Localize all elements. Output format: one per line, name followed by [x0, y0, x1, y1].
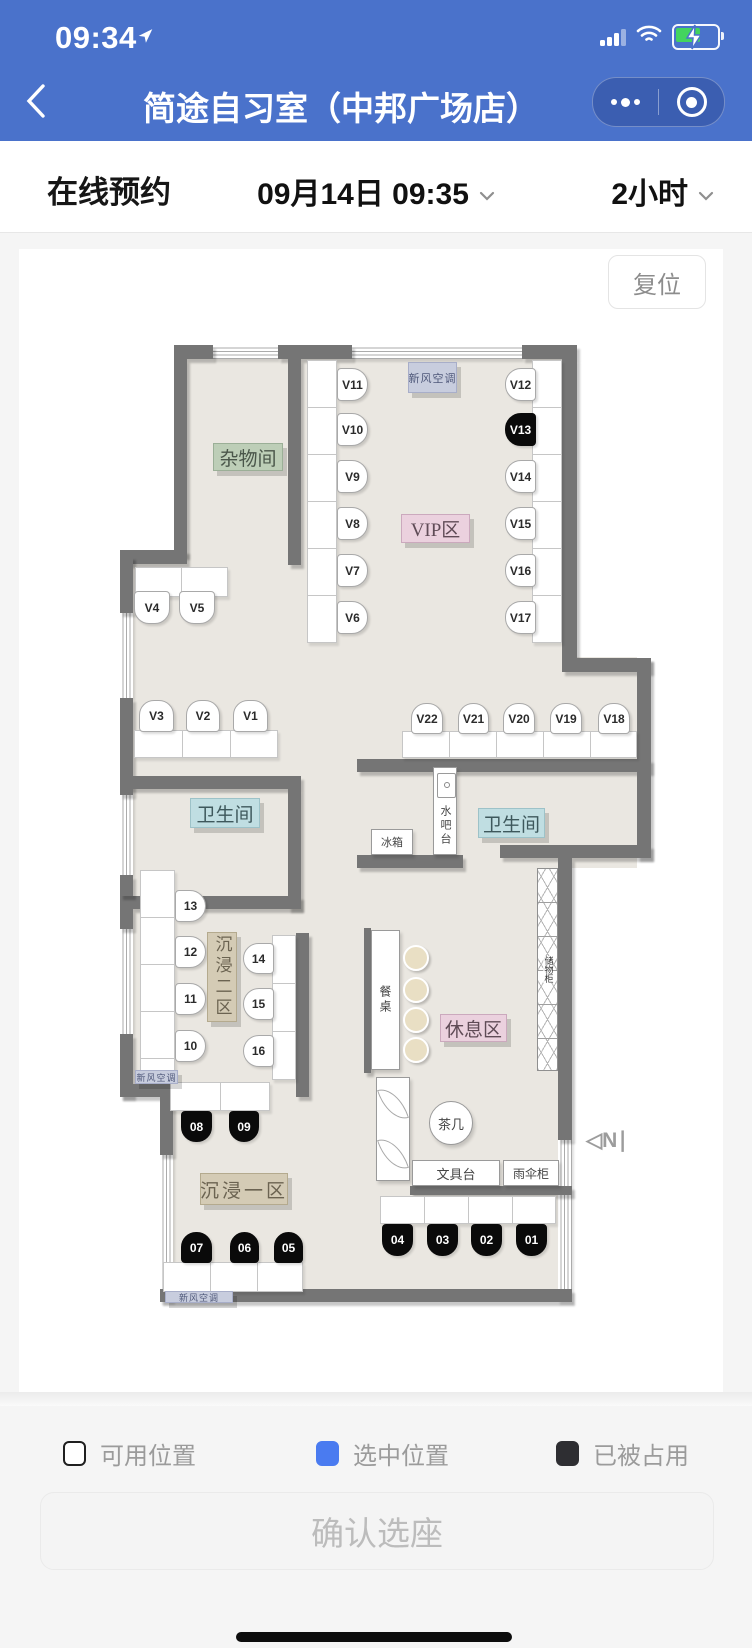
seat-14[interactable]: 14 [243, 943, 274, 974]
seat-V7[interactable]: V7 [337, 554, 368, 587]
wall [558, 858, 572, 1140]
room-label: 沉浸二区 [207, 932, 237, 1022]
legend-swatch [316, 1441, 339, 1466]
seat-10[interactable]: 10 [175, 1030, 206, 1062]
canvas-bottom-fade [0, 1392, 752, 1406]
chevron-down-icon [698, 175, 714, 209]
reset-view-button[interactable]: 复位 [608, 255, 706, 309]
confirm-seat-button[interactable]: 确认选座 [40, 1492, 714, 1570]
signal-icon [600, 29, 626, 46]
wall [296, 933, 309, 1097]
seat-16[interactable]: 16 [243, 1035, 274, 1067]
seat-09[interactable]: 09 [229, 1111, 259, 1142]
target-circle-icon [677, 87, 707, 117]
seat-V6[interactable]: V6 [337, 601, 368, 634]
seat-11[interactable]: 11 [175, 983, 206, 1015]
furniture-茶几: 茶几 [429, 1101, 473, 1145]
close-minimize-button[interactable] [659, 78, 724, 126]
home-indicator [236, 1632, 512, 1642]
seat-01[interactable]: 01 [516, 1224, 547, 1256]
seat-V17[interactable]: V17 [505, 601, 536, 634]
booking-bar: 在线预约 09月14日 09:35 2小时 [0, 141, 752, 233]
seat-V8[interactable]: V8 [337, 507, 368, 540]
duration-selector[interactable]: 2小时 [611, 169, 714, 213]
room-label: VIP区 [401, 514, 470, 543]
wall [562, 359, 577, 658]
wall [522, 345, 577, 359]
window-wall [120, 613, 133, 698]
legend-item: 可用位置 [63, 1436, 196, 1471]
legend-item: 选中位置 [316, 1436, 449, 1471]
north-indicator: ◁N∣ [586, 1128, 628, 1153]
room-label: 杂物间 [213, 443, 283, 471]
miniprogram-capsule [592, 77, 725, 127]
room-label: 新风空调 [135, 1070, 178, 1084]
seat-07[interactable]: 07 [181, 1232, 212, 1263]
seat-V21[interactable]: V21 [458, 703, 489, 734]
page-title: 简途自习室（中邦广场店） [100, 82, 582, 130]
wall [500, 845, 651, 858]
desk [402, 731, 637, 758]
chevron-down-icon [479, 175, 495, 209]
desk [532, 360, 562, 643]
status-icons [600, 24, 720, 50]
seat-V19[interactable]: V19 [550, 703, 582, 734]
seat-V20[interactable]: V20 [503, 703, 535, 734]
location-services-icon [137, 27, 154, 49]
seat-V15[interactable]: V15 [505, 507, 536, 540]
seat-13[interactable]: 13 [175, 890, 206, 922]
seat-V12[interactable]: V12 [505, 368, 536, 401]
wall [120, 556, 133, 613]
nav-bar: 简途自习室（中邦广场店） [0, 60, 752, 141]
wall [127, 776, 301, 789]
seat-V16[interactable]: V16 [505, 554, 536, 587]
furniture-雨伞柜: 雨伞柜 [503, 1160, 559, 1186]
legend-swatch [63, 1441, 86, 1466]
stool [403, 1007, 429, 1033]
seat-V5[interactable]: V5 [179, 591, 215, 624]
wall [364, 928, 371, 1073]
exterior-patch [120, 1097, 160, 1302]
window-wall [558, 1140, 572, 1302]
stool [403, 1037, 429, 1063]
room-label: 新风空调 [165, 1291, 233, 1303]
seat-02[interactable]: 02 [471, 1224, 502, 1256]
seat-V1[interactable]: V1 [233, 700, 268, 732]
wifi-icon [636, 25, 662, 49]
desk [307, 360, 337, 643]
furniture-冰箱: 冰箱 [371, 829, 413, 855]
wall [288, 359, 301, 565]
seat-12[interactable]: 12 [175, 936, 206, 968]
stool [403, 977, 429, 1003]
legend-label: 选中位置 [353, 1436, 449, 1471]
seat-08[interactable]: 08 [181, 1111, 212, 1142]
furniture-sofa [376, 1077, 410, 1181]
seat-V13[interactable]: V13 [505, 413, 536, 446]
window-wall [120, 929, 133, 1034]
furniture-文具台: 文具台 [412, 1160, 500, 1186]
wall [410, 1186, 572, 1195]
desk [134, 730, 278, 758]
furniture-餐桌: 餐桌 [371, 930, 400, 1070]
wall [120, 909, 133, 929]
wall [120, 789, 133, 795]
room-label: 休息区 [440, 1014, 507, 1042]
status-time: 09:34 [55, 20, 137, 56]
room-label: 沉浸一区 [200, 1173, 288, 1205]
wall [278, 345, 352, 359]
wall [357, 855, 463, 868]
furniture-储物柜: 储物柜 [537, 868, 558, 1071]
window-wall [120, 795, 133, 875]
wall [357, 759, 651, 772]
seat-V4[interactable]: V4 [134, 591, 170, 624]
furniture-水吧台: 水吧台 [433, 767, 457, 855]
desk [380, 1196, 556, 1224]
wall [637, 658, 651, 772]
wall [288, 789, 301, 909]
legend-item: 已被占用 [556, 1436, 689, 1471]
desk [170, 1082, 270, 1111]
legend-label: 已被占用 [593, 1436, 689, 1471]
ellipsis-icon [611, 98, 640, 107]
wall [174, 345, 213, 359]
battery-charging-icon [672, 24, 720, 50]
seat-V9[interactable]: V9 [337, 460, 368, 493]
desk [272, 935, 296, 1080]
seat-04[interactable]: 04 [382, 1224, 413, 1256]
seat-V22[interactable]: V22 [411, 703, 443, 734]
floor-plan[interactable]: 复位 ◁N∣ V11V10V9V8V7V6V12V13V14V15V16V17V… [19, 249, 723, 1392]
more-options-button[interactable] [593, 78, 658, 126]
desk [140, 870, 175, 1075]
seat-06[interactable]: 06 [230, 1232, 259, 1263]
seat-05[interactable]: 05 [274, 1232, 303, 1263]
room-label: 卫生间 [190, 798, 260, 828]
status-nav-bar: 09:34 简途自习室（中邦广场店） [0, 0, 752, 141]
desk [163, 1262, 303, 1292]
legend-swatch [556, 1441, 579, 1466]
seat-V11[interactable]: V11 [337, 368, 368, 401]
back-button[interactable] [26, 84, 56, 118]
room-label: 卫生间 [478, 808, 545, 838]
wall [174, 359, 187, 556]
seat-V14[interactable]: V14 [505, 460, 536, 493]
window-wall [213, 345, 278, 359]
seat-03[interactable]: 03 [427, 1224, 458, 1256]
stool [403, 945, 429, 971]
seat-V3[interactable]: V3 [139, 700, 174, 732]
legend-label: 可用位置 [100, 1436, 196, 1471]
seat-V18[interactable]: V18 [598, 703, 630, 734]
window-wall [352, 345, 522, 359]
wall [120, 875, 133, 896]
seat-legend: 可用位置选中位置已被占用 [0, 1436, 752, 1466]
seat-15[interactable]: 15 [243, 988, 274, 1020]
seat-V10[interactable]: V10 [337, 413, 368, 446]
seat-V2[interactable]: V2 [186, 700, 220, 732]
room-label: 新风空调 [408, 362, 457, 393]
